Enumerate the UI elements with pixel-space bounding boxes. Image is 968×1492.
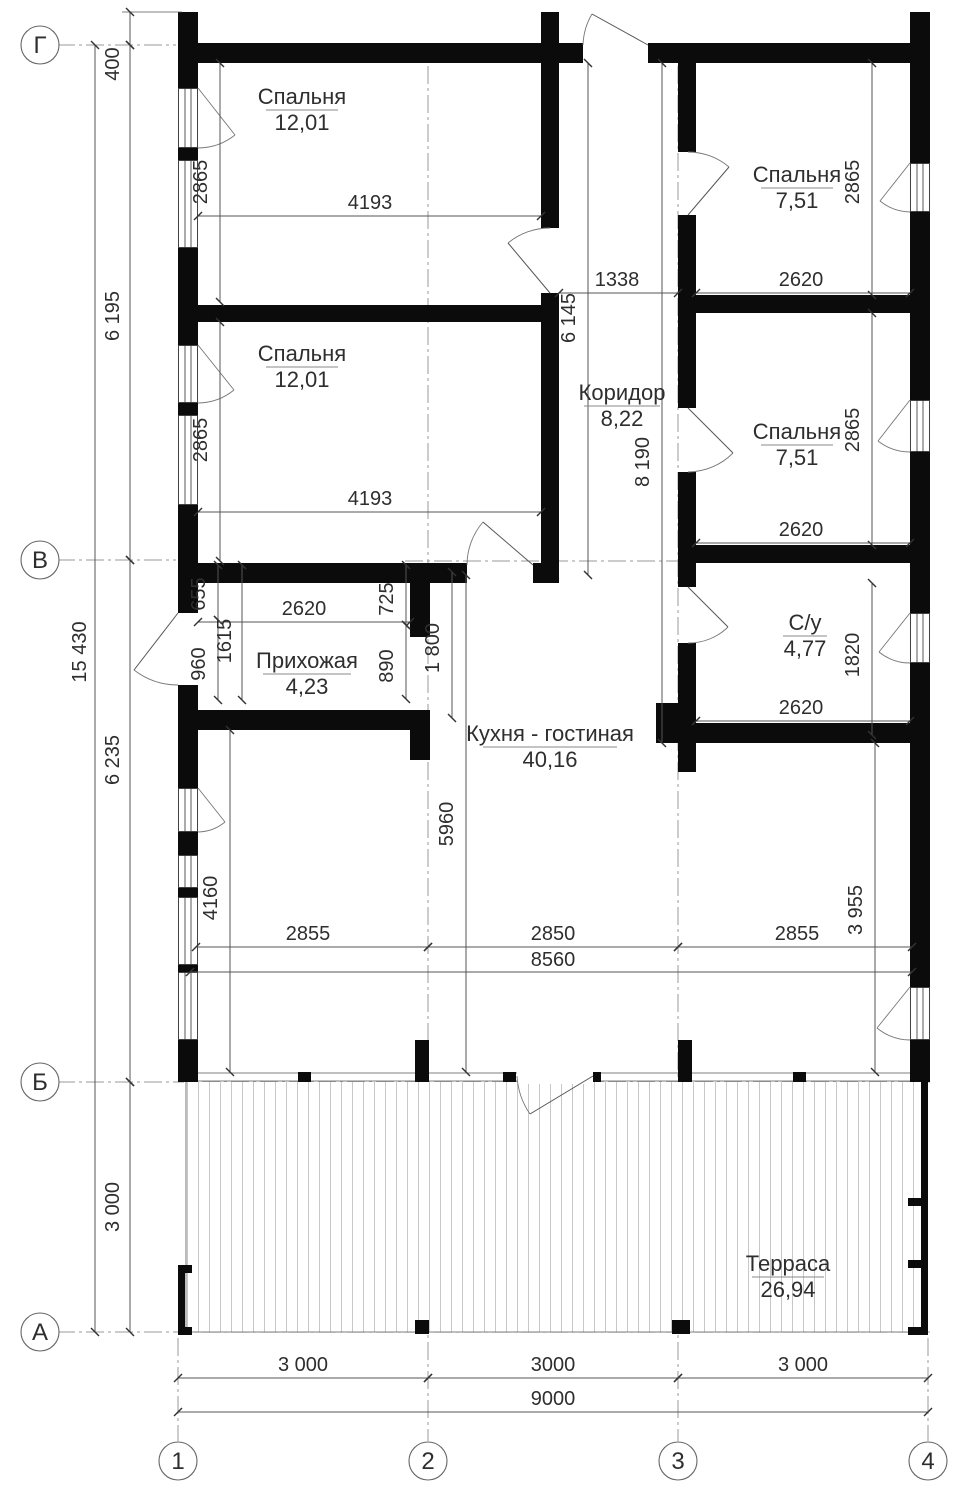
svg-text:26,94: 26,94 xyxy=(760,1277,815,1302)
svg-text:С/у: С/у xyxy=(789,610,822,635)
window-kitchen-right xyxy=(877,987,930,1040)
dim-bathroom-h: 1820 xyxy=(842,633,864,678)
svg-text:4,77: 4,77 xyxy=(784,636,827,661)
svg-text:Спальня: Спальня xyxy=(753,419,841,444)
dim-total-width: 9000 xyxy=(531,1388,576,1410)
svg-text:В: В xyxy=(32,547,48,574)
svg-text:А: А xyxy=(32,1319,48,1346)
floor-plan-canvas: 400 6 195 6 235 3 000 15 430 3 000 3000 … xyxy=(0,0,968,1492)
dim-bedroom4-w: 2620 xyxy=(779,519,824,541)
svg-text:Кухня - гостиная: Кухня - гостиная xyxy=(466,721,634,746)
svg-text:1: 1 xyxy=(171,1448,184,1475)
dim-left-v-b: 6 235 xyxy=(102,735,124,785)
svg-text:Спальня: Спальня xyxy=(258,84,346,109)
axis-col-4: 4 xyxy=(909,1442,947,1480)
room-bedroom-1: Спальня12,01 xyxy=(258,84,346,135)
window-bedroom1-a xyxy=(179,88,236,148)
room-corridor: Коридор8,22 xyxy=(579,380,666,431)
dim-kitchen-total: 8560 xyxy=(531,949,576,971)
svg-text:Спальня: Спальня xyxy=(753,162,841,187)
dim-hall-w: 2620 xyxy=(282,598,327,620)
svg-text:Прихожая: Прихожая xyxy=(256,648,358,673)
svg-text:Спальня: Спальня xyxy=(258,341,346,366)
svg-text:4,23: 4,23 xyxy=(286,674,329,699)
svg-text:8,22: 8,22 xyxy=(601,406,644,431)
dim-corridor-full: 8 190 xyxy=(632,437,654,487)
dim-kitchen-2855b: 2855 xyxy=(775,923,820,945)
svg-text:Г: Г xyxy=(34,32,47,59)
window-bedroom2-a xyxy=(179,345,235,403)
dim-hall-1615: 1615 xyxy=(214,619,236,664)
axis-row-a: А xyxy=(21,1313,59,1351)
door-bedroom4 xyxy=(688,408,733,472)
window-kitchen-d xyxy=(179,972,198,1040)
floor-plan: 400 6 195 6 235 3 000 15 430 3 000 3000 … xyxy=(0,0,968,1492)
window-kitchen-c xyxy=(179,897,198,965)
dim-kitchen-2850: 2850 xyxy=(531,923,576,945)
dim-hall-890: 890 xyxy=(376,649,398,682)
dim-bedroom2-w: 4193 xyxy=(348,488,393,510)
dim-corridor-w: 1338 xyxy=(595,269,640,291)
dim-left-total: 15 430 xyxy=(69,621,91,682)
window-kitchen-b xyxy=(179,855,198,888)
dim-hall-960: 960 xyxy=(188,647,210,680)
dim-left-b-a: 3 000 xyxy=(102,1182,124,1232)
terrace-deck xyxy=(178,1073,930,1332)
axis-col-1: 1 xyxy=(159,1442,197,1480)
axis-row-b: Б xyxy=(21,1063,59,1101)
dim-offset-top: 400 xyxy=(102,47,124,80)
dim-kitchen-2855a: 2855 xyxy=(286,923,331,945)
room-bedroom-4: Спальня7,51 xyxy=(753,419,841,470)
dim-hall-1800: 1 800 xyxy=(422,623,444,673)
window-bedroom4 xyxy=(878,400,930,452)
svg-text:Коридор: Коридор xyxy=(579,380,666,405)
dim-bay-1: 3 000 xyxy=(278,1354,328,1376)
dim-bedroom2-h: 2865 xyxy=(190,418,212,463)
svg-text:12,01: 12,01 xyxy=(274,367,329,392)
svg-text:3: 3 xyxy=(671,1448,684,1475)
door-bedroom1 xyxy=(508,228,550,293)
dim-kitchen-4160: 4160 xyxy=(200,876,222,921)
svg-text:7,51: 7,51 xyxy=(776,445,819,470)
dim-bathroom-w: 2620 xyxy=(779,697,824,719)
svg-text:Б: Б xyxy=(32,1069,48,1096)
svg-text:Терраса: Терраса xyxy=(746,1251,831,1276)
room-hallway: Прихожая4,23 xyxy=(256,648,358,699)
axis-col-2: 2 xyxy=(409,1442,447,1480)
dim-kitchen-5960: 5960 xyxy=(436,802,458,847)
door-entrance-left xyxy=(134,613,178,685)
svg-text:2: 2 xyxy=(421,1448,434,1475)
dim-bay-2: 3000 xyxy=(531,1354,576,1376)
dim-hall-725: 725 xyxy=(376,582,398,615)
room-bathroom: С/у4,77 xyxy=(783,610,827,661)
dim-bedroom4-h: 2865 xyxy=(842,408,864,453)
axis-col-3: 3 xyxy=(659,1442,697,1480)
room-kitchen-living: Кухня - гостиная40,16 xyxy=(466,721,634,772)
dim-kitchen-3955: 3 955 xyxy=(845,885,867,935)
room-bedroom-2: Спальня12,01 xyxy=(258,341,346,392)
axis-row-g: Г xyxy=(21,26,59,64)
dim-bedroom1-w: 4193 xyxy=(348,192,393,214)
axis-row-v: В xyxy=(21,541,59,579)
dim-bedroom3-w: 2620 xyxy=(779,269,824,291)
dim-bedroom1-h: 2865 xyxy=(190,160,212,205)
room-bedroom-3: Спальня7,51 xyxy=(753,162,841,213)
door-bedroom2 xyxy=(467,522,533,565)
window-bathroom xyxy=(879,613,930,663)
dim-hall-655: 655 xyxy=(188,577,210,610)
door-bedroom3 xyxy=(688,152,729,215)
dim-bedroom3-h: 2865 xyxy=(842,160,864,205)
door-entrance-top xyxy=(583,14,648,45)
dim-bay-3: 3 000 xyxy=(778,1354,828,1376)
dim-left-g-v: 6 195 xyxy=(102,291,124,341)
door-bathroom xyxy=(688,587,728,643)
window-kitchen-a xyxy=(179,788,226,832)
svg-text:12,01: 12,01 xyxy=(274,110,329,135)
svg-text:7,51: 7,51 xyxy=(776,188,819,213)
dim-corridor-h: 6 145 xyxy=(558,293,580,343)
svg-text:40,16: 40,16 xyxy=(522,747,577,772)
window-bedroom3 xyxy=(880,163,930,212)
svg-text:4: 4 xyxy=(921,1448,934,1475)
